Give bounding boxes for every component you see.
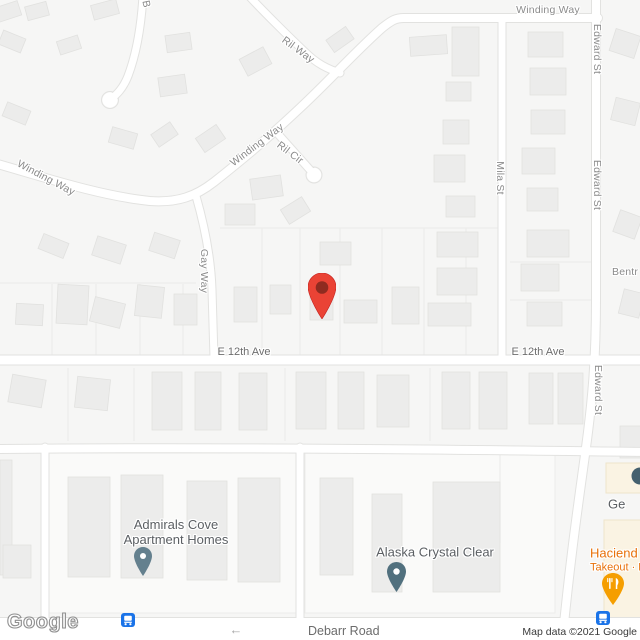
poi-label-admirals-line1: Admirals Cove (124, 517, 229, 532)
poi-pin-hacienda-restaurant-icon[interactable] (602, 573, 624, 605)
street-label-e12th-ave-left: E 12th Ave (217, 346, 270, 358)
poi-label-admirals-line2: Apartment Homes (124, 532, 229, 547)
poi-label-ge[interactable]: Ge (608, 497, 625, 512)
oneway-arrow-icon: ← (227, 622, 245, 637)
map-base-graphics (0, 0, 640, 640)
poi-label-admirals-cove[interactable]: Admirals Cove Apartment Homes (124, 517, 229, 547)
poi-label-alaska-crystal-clear[interactable]: Alaska Crystal Clear (376, 545, 494, 560)
poi-pin-admirals-cove[interactable] (134, 547, 152, 576)
street-label-edward-st-low: Edward St (592, 365, 604, 415)
street-label-mila-st: Mila St (494, 161, 506, 195)
google-logo[interactable]: Google (7, 611, 79, 634)
street-label-edward-st-mid: Edward St (591, 160, 603, 210)
poi-circle-icon-ge[interactable] (631, 467, 640, 485)
transit-stop-icon-right[interactable] (596, 611, 610, 625)
street-label-gay-way: Gay Way (198, 249, 210, 293)
map-canvas[interactable]: Winding Way Winding Way Winding Way Ril … (0, 0, 640, 640)
street-label-edward-st-top: Edward St (591, 24, 603, 74)
location-marker-pin[interactable] (308, 273, 336, 319)
street-label-bentree: Bentr (612, 266, 638, 278)
street-label-winding-way-top: Winding Way (516, 4, 580, 16)
poi-pin-alaska-crystal-clear[interactable] (387, 562, 406, 592)
street-label-e12th-ave-right: E 12th Ave (511, 346, 564, 358)
poi-label-hacienda[interactable]: Haciend (590, 546, 638, 561)
map-data-attribution: Map data ©2021 Google (522, 626, 637, 638)
transit-stop-icon-left[interactable] (121, 613, 135, 627)
street-label-debarr-road: Debarr Road (308, 624, 380, 638)
